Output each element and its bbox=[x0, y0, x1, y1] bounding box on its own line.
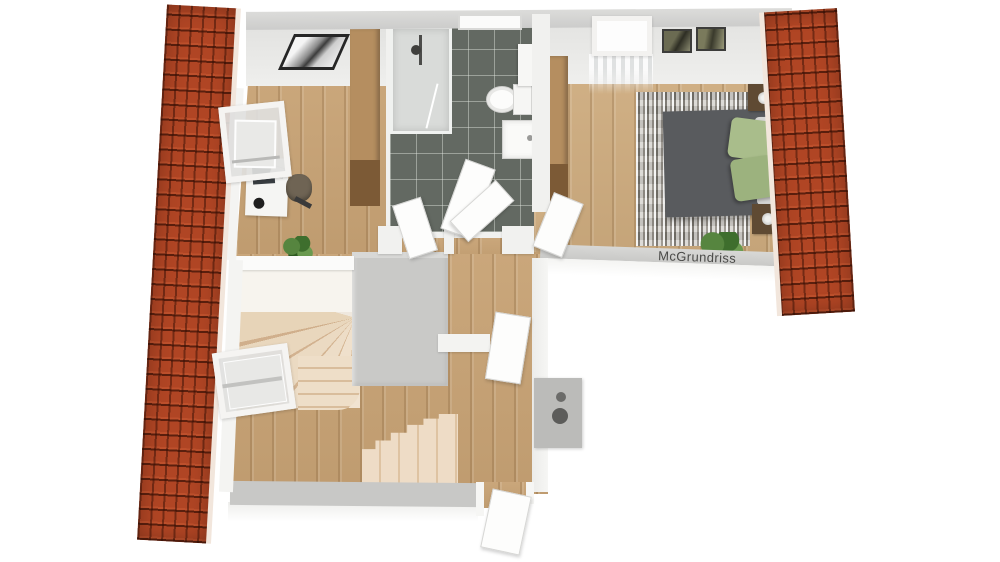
stair-landing-platform bbox=[238, 266, 352, 316]
knee-wall-office-landing bbox=[234, 256, 354, 270]
roof-panel-right bbox=[763, 8, 855, 316]
bedroom-curtains bbox=[589, 54, 653, 94]
office-wardrobe-lower-section bbox=[350, 160, 380, 206]
wall-bathroom-bedroom bbox=[532, 14, 550, 212]
bedroom-picture-2 bbox=[696, 27, 726, 51]
watermark-text: McGrundriss bbox=[658, 249, 737, 266]
wall-segment-left-of-office-door bbox=[378, 226, 402, 254]
bedroom-picture-1 bbox=[662, 29, 692, 53]
office-roof-window-open bbox=[218, 101, 292, 183]
floor-plan-canvas: McGrundriss bbox=[0, 0, 1000, 562]
corridor-right-wall bbox=[532, 258, 548, 492]
connector-steps bbox=[298, 356, 360, 410]
corridor-wall-jut bbox=[438, 334, 490, 352]
chimney bbox=[534, 378, 582, 448]
chimney-flue-large bbox=[552, 408, 568, 424]
hall-bottom-wall-gray bbox=[230, 481, 478, 507]
chimney-flue-small bbox=[556, 392, 566, 402]
shower-head bbox=[411, 45, 421, 55]
bedroom-roof-window bbox=[592, 16, 652, 56]
shower-glass-door bbox=[425, 83, 438, 128]
hall-roof-window-open bbox=[212, 343, 296, 419]
wall-segment-right-of-bath-door bbox=[502, 226, 534, 254]
shower bbox=[390, 26, 452, 134]
stair-core-wall bbox=[352, 252, 448, 386]
office-wardrobe bbox=[350, 28, 380, 206]
office-chair bbox=[284, 172, 316, 212]
toilet-tank bbox=[513, 84, 532, 115]
desk-lamp bbox=[253, 198, 264, 209]
bathroom-skylight bbox=[458, 14, 522, 30]
bottom-door-post-left bbox=[476, 482, 484, 516]
